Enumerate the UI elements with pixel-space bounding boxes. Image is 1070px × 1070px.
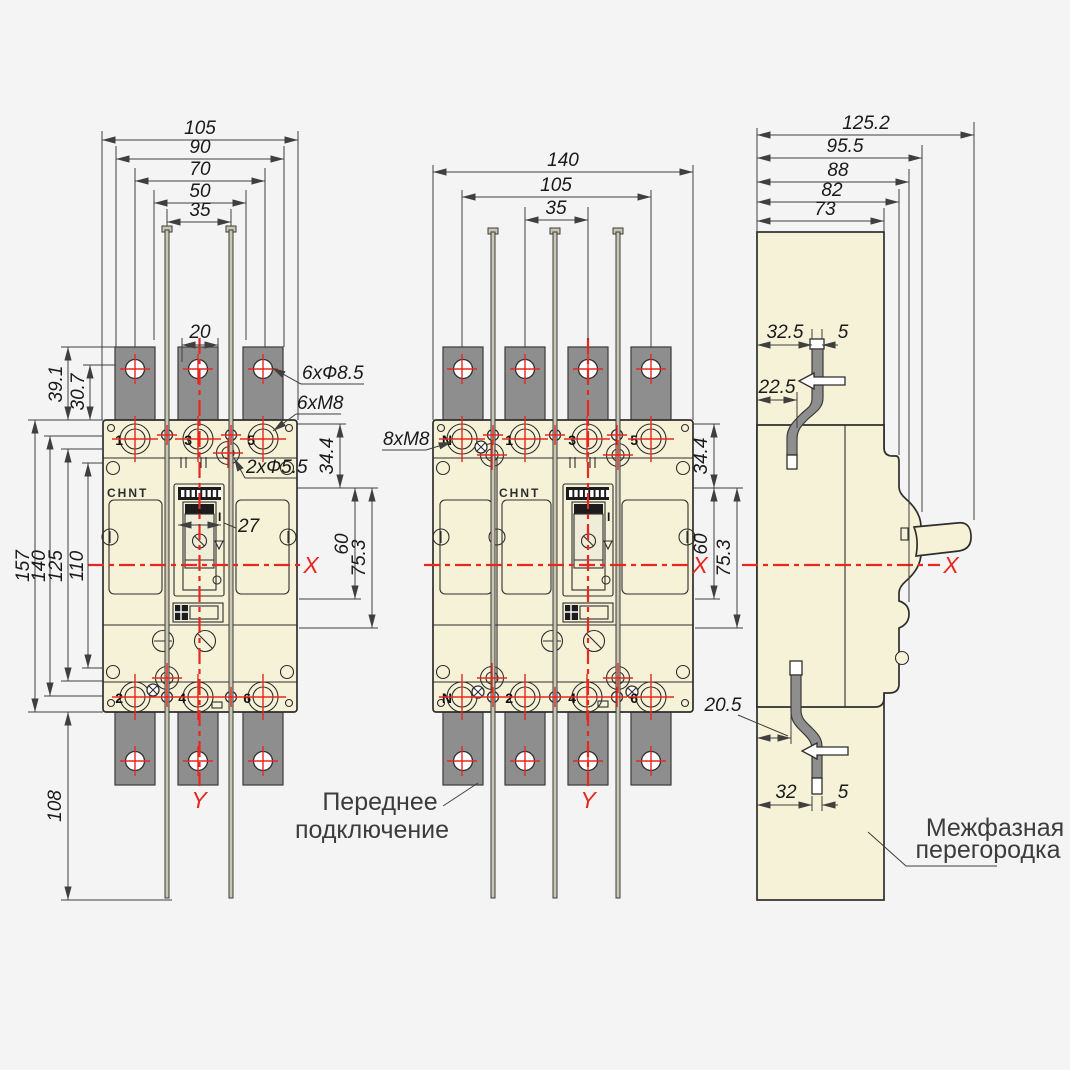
side-screw — [896, 652, 909, 665]
terminal-label: 3 — [184, 432, 192, 448]
terminal-label: 1 — [115, 432, 123, 448]
brand-logo: CHNT — [499, 486, 540, 500]
dim-39-1: 39.1 — [46, 366, 67, 403]
annotations: Переднее подключение Межфазная перегород… — [295, 783, 1064, 866]
dim-32-5: 32.5 — [767, 322, 804, 343]
brand-logo: CHNT — [107, 486, 148, 500]
terminal-label: 2 — [505, 690, 513, 706]
axis-y-label: Y — [580, 787, 597, 813]
dim-75-3: 75.3 — [349, 539, 370, 576]
dim-140: 140 — [547, 150, 579, 171]
axis-x-label: X — [942, 552, 960, 578]
dim-27-handle: 27 — [237, 516, 261, 537]
callout-6xM8: 6xM8 — [297, 393, 344, 414]
front-connection-label-line1: Переднее — [322, 788, 437, 816]
dim-110: 110 — [67, 550, 88, 581]
terminal-label: 5 — [630, 432, 638, 448]
terminal-label: 4 — [568, 690, 576, 706]
dim-22-5: 22.5 — [758, 377, 796, 398]
terminal-label: 5 — [247, 432, 255, 448]
dim-105: 105 — [184, 118, 216, 139]
dim-35: 35 — [545, 198, 567, 219]
terminal-label: 3 — [568, 432, 576, 448]
dim-95-5: 95.5 — [827, 136, 864, 157]
side-toggle-handle[interactable] — [914, 523, 971, 556]
dim-82: 82 — [821, 180, 843, 201]
dim-34-4: 34.4 — [691, 438, 712, 475]
axis-x-label: X — [691, 552, 709, 578]
dim-35: 35 — [189, 200, 211, 221]
dim-5-bottom: 5 — [838, 782, 849, 803]
callout-6xF8-5: 6xФ8.5 — [302, 363, 364, 384]
callout-2xF5-5: 2xФ5.5 — [245, 457, 308, 478]
interphase-barrier-label-line2: перегородка — [916, 836, 1061, 864]
dim-60: 60 — [691, 533, 712, 555]
terminal-label: 6 — [243, 690, 251, 706]
terminal-label: N — [442, 432, 452, 448]
dim-108: 108 — [45, 790, 66, 822]
axis-y-label: Y — [191, 787, 208, 813]
dim-88: 88 — [827, 160, 849, 181]
dim-125-2: 125.2 — [842, 113, 890, 134]
dim-32: 32 — [775, 782, 797, 803]
dim-73: 73 — [814, 199, 836, 220]
terminal-label: N — [442, 690, 452, 706]
dim-125: 125 — [46, 550, 67, 582]
dim-30-7: 30.7 — [68, 372, 89, 410]
technical-drawing-page: CHNT I 1 3 5 — [0, 0, 1070, 1070]
dim-34-4: 34.4 — [317, 438, 338, 475]
dim-90: 90 — [189, 137, 211, 158]
terminal-label: 2 — [115, 690, 123, 706]
handle-on-mark: I — [607, 510, 610, 524]
dim-5-top: 5 — [838, 322, 849, 343]
handle-on-mark: I — [218, 510, 221, 524]
dim-20-5: 20.5 — [704, 695, 742, 716]
front-connection-label-line2: подключение — [295, 816, 449, 844]
dim-105: 105 — [540, 175, 572, 196]
dim-75-3: 75.3 — [714, 539, 735, 576]
breaker-dimension-drawing: CHNT I 1 3 5 — [0, 0, 1070, 1070]
callout-8xM8: 8xM8 — [383, 429, 430, 450]
terminal-label: 4 — [178, 690, 186, 706]
terminal-label: 1 — [505, 432, 513, 448]
terminal-label: 6 — [630, 690, 638, 706]
dims-left-view-right: 34.4 60 75.3 — [297, 424, 378, 628]
dim-20: 20 — [188, 322, 211, 343]
axis-x-label: X — [302, 552, 320, 578]
dim-50: 50 — [189, 181, 211, 202]
dim-70: 70 — [189, 159, 211, 180]
